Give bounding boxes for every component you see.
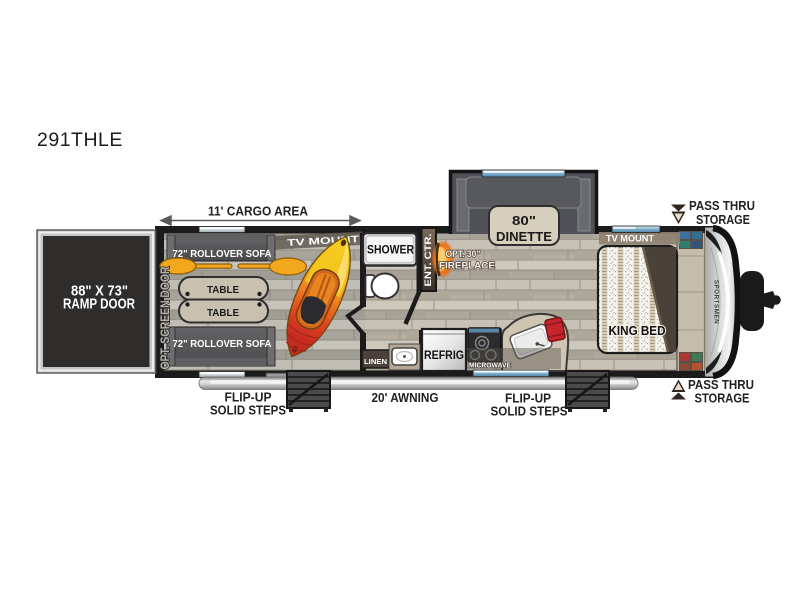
svg-text:KING BED: KING BED [609,324,666,338]
svg-text:11' CARGO AREA: 11' CARGO AREA [208,204,308,219]
svg-text:SPORTSMEN: SPORTSMEN [713,280,720,324]
svg-text:FLIP-UP: FLIP-UP [505,392,551,406]
svg-text:20' AWNING: 20' AWNING [372,391,439,405]
svg-text:RAMP DOOR: RAMP DOOR [63,297,135,313]
svg-text:PASS THRU: PASS THRU [688,378,754,392]
svg-text:80": 80" [512,214,536,228]
svg-text:FIREPLACE: FIREPLACE [439,261,495,271]
svg-text:SOLID STEPS: SOLID STEPS [210,404,286,418]
svg-text:72" ROLLOVER SOFA: 72" ROLLOVER SOFA [173,248,272,260]
svg-text:SOLID STEPS: SOLID STEPS [491,405,568,419]
svg-text:72" ROLLOVER SOFA: 72" ROLLOVER SOFA [173,338,272,350]
svg-text:LINEN: LINEN [364,359,387,366]
svg-text:STORAGE: STORAGE [695,392,750,406]
svg-text:OPT. 30": OPT. 30" [446,249,481,259]
svg-text:DINETTE: DINETTE [496,230,552,244]
svg-text:OPT. SCREEN DOOR: OPT. SCREEN DOOR [158,266,172,369]
svg-text:TABLE: TABLE [207,284,239,296]
svg-text:MICROWAVE: MICROWAVE [469,363,511,370]
svg-text:ENT. CTR.: ENT. CTR. [423,234,433,287]
svg-text:REFRIG: REFRIG [424,350,464,362]
svg-text:PASS THRU: PASS THRU [689,199,755,213]
svg-text:TABLE: TABLE [207,307,239,319]
svg-text:TV MOUNT: TV MOUNT [606,234,655,244]
svg-text:STORAGE: STORAGE [696,213,750,227]
svg-text:291THLE: 291THLE [37,129,123,151]
svg-text:SHOWER: SHOWER [367,243,414,257]
svg-text:FLIP-UP: FLIP-UP [225,391,272,405]
